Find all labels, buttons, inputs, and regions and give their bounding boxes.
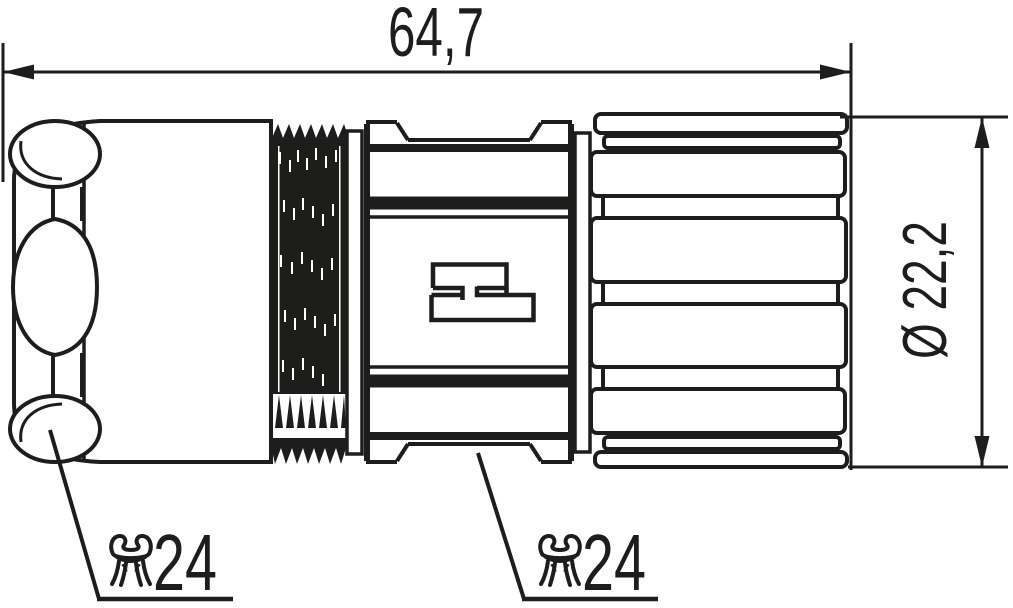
leader-line-right [478,453,524,599]
wrench-size-label: 24 [582,518,646,607]
technical-drawing-canvas: 64,7 Ø 22,2 24 24 [0,0,1013,608]
knurl-bottom-zigzag [272,438,346,464]
housing-cap-bottom [595,452,847,467]
length-arrow-right-icon [820,65,851,80]
coupling-top-edge [366,122,572,140]
junction-ring-left [347,131,362,454]
housing-rib-thin-top [604,136,840,148]
junction-ring-right [575,133,590,452]
length-dimension-label: 64,7 [388,0,484,71]
knurl-body [272,141,346,394]
diameter-dimension: Ø 22,2 [840,117,1008,467]
housing-rib [591,152,845,196]
knurl-top-scallops [272,124,346,143]
housing-rib [591,304,846,367]
wrench-size-label: 24 [153,518,217,607]
coupling-bottom-edge [366,444,572,462]
housing-cap-top [595,114,847,133]
knurl-thread-teeth [275,395,346,428]
housing-rib [591,218,846,282]
wrench-icon [111,536,151,585]
diameter-arrow-top-icon [975,117,990,148]
housing-groove [603,367,838,389]
diameter-arrow-bottom-icon [975,436,990,467]
wrench-callout-right: 24 [478,453,658,607]
cable-gland [10,121,271,462]
wrench-icon [540,536,580,585]
housing-groove [603,282,838,304]
manufacturer-logo [432,265,534,321]
length-arrow-left-icon [3,65,34,80]
connector-drawing: 64,7 Ø 22,2 24 24 [0,0,1013,608]
ribbed-housing [591,114,847,467]
diameter-dimension-label: Ø 22,2 [891,221,960,359]
coupling-ring [366,122,572,462]
gland-lobe-middle [13,219,97,355]
housing-rib [591,389,845,433]
housing-rib-thin-bottom [604,437,840,449]
housing-groove [603,196,838,218]
knurled-nut [272,124,346,464]
